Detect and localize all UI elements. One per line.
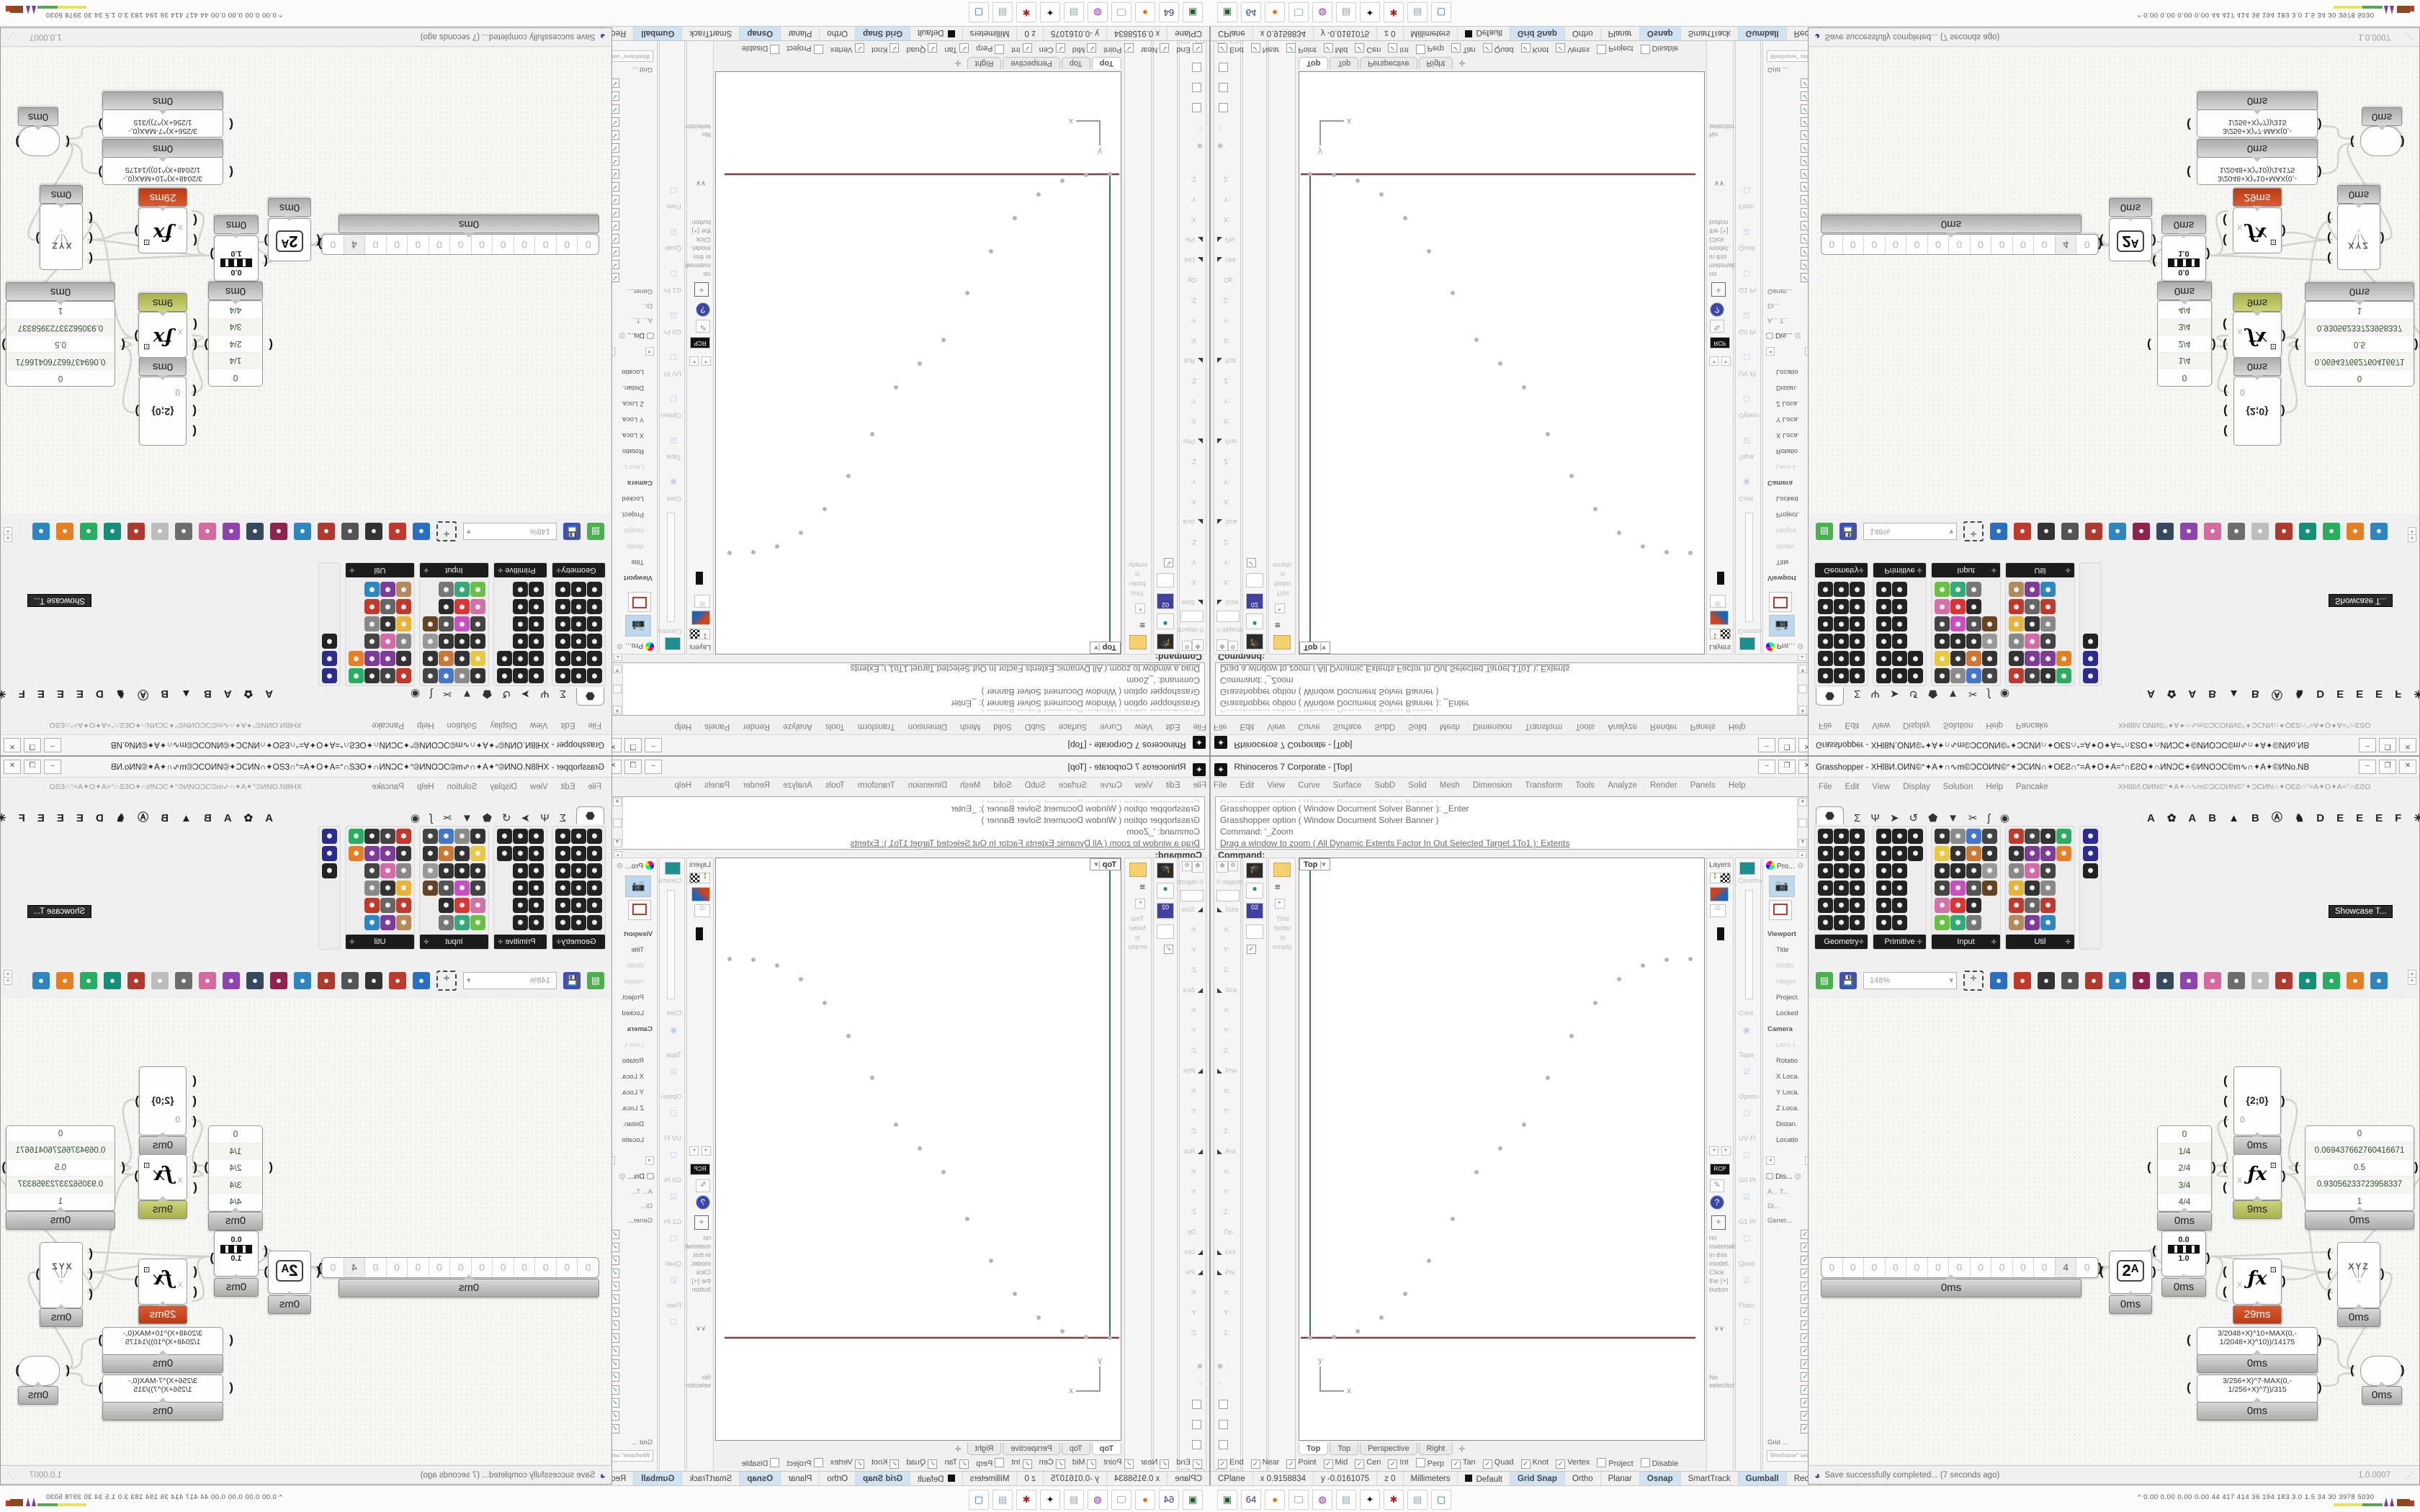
component-icon[interactable]: ⬢ [2009, 616, 2024, 631]
component-icon[interactable]: ⬢ [1950, 915, 1966, 930]
osnap-point[interactable]: ✓Point [1286, 1458, 1316, 1469]
component-icon[interactable]: ⬢ [322, 668, 337, 683]
status-y[interactable]: y -0.0161075 [1043, 24, 1106, 40]
minimize-icon[interactable]: ‒ [1758, 738, 1775, 752]
gh-toolbar-icon-5[interactable]: ● [2014, 972, 2031, 989]
node-port[interactable]: ( [193, 1264, 197, 1279]
component-icon[interactable]: ⬢ [454, 915, 470, 930]
component-icon[interactable]: ⬢ [1950, 651, 1966, 666]
component-icon[interactable]: ⬢ [571, 599, 586, 614]
component-icon[interactable]: ⬢ [2009, 863, 2024, 878]
property-distan[interactable]: Distan. [1776, 1120, 1798, 1128]
component-icon[interactable]: ⬢ [1834, 651, 1849, 666]
component-icon[interactable]: ⬢ [454, 846, 470, 861]
node-port[interactable]: ) [2281, 404, 2285, 418]
osnap-int[interactable]: ✓Int [1011, 44, 1031, 55]
osnap-mid[interactable]: ✓Mid [1072, 1458, 1097, 1469]
gh-toolbar-icon-11[interactable]: ● [2156, 523, 2174, 540]
component-icon[interactable]: ⬢ [1876, 915, 1891, 930]
rhino-menu-dimension[interactable]: Dimension [1473, 781, 1512, 790]
node-port[interactable]: ) [98, 117, 102, 132]
component-icon[interactable]: ⬢ [555, 846, 570, 861]
rhino-menu-panels[interactable]: Panels [1690, 722, 1716, 731]
component-icon[interactable]: ⬢ [513, 846, 528, 861]
property-rotatio[interactable]: Rotatio [622, 447, 644, 455]
component-icon[interactable]: ⬢ [439, 582, 454, 597]
gh-plugin-tab-12[interactable]: F [19, 812, 25, 824]
viewport-label[interactable]: Top |▾ [1299, 642, 1330, 654]
checker-icon[interactable] [689, 873, 700, 883]
help-icon[interactable]: ? [696, 302, 710, 317]
osnap-mid[interactable]: ✓Mid [1072, 44, 1097, 55]
gh-toolbar-icon-0[interactable]: ▤ [1816, 972, 1833, 989]
maximize-icon[interactable]: ❐ [2379, 738, 2396, 752]
settings-red-icon[interactable]: ✱ [1016, 2, 1036, 22]
constraint-option[interactable]: ☐ [670, 1151, 677, 1160]
help-icon[interactable]: ? [1710, 302, 1724, 317]
node-port[interactable]: ) [2282, 1274, 2286, 1288]
quarters-panel[interactable]: 01/42/43/44/4 [2157, 1125, 2212, 1212]
component-icon[interactable]: ⬢ [364, 846, 380, 861]
component-icon[interactable]: ⬢ [470, 582, 485, 597]
status-default[interactable]: Default [910, 24, 962, 40]
component-icon[interactable]: ⬢ [2083, 668, 2098, 683]
component-icon[interactable]: ⬢ [529, 651, 544, 666]
command-history[interactable]: Grasshopper option ( Window Document Sol… [611, 796, 1205, 850]
osnap-mid[interactable]: ✓Mid [1324, 1458, 1348, 1469]
gizmo-icon[interactable]: ✥ [1192, 639, 1204, 651]
tool-02-icon[interactable]: 02 [1157, 593, 1174, 609]
status-x[interactable]: x 0.9158834 [1106, 24, 1167, 40]
zoom-level-combo[interactable]: 148% [1863, 972, 1957, 989]
component-icon[interactable]: ⬢ [396, 863, 411, 878]
boxedit-input[interactable] [1180, 890, 1204, 901]
slider-digit[interactable]: 0 [322, 1258, 344, 1277]
gh-plugin-tab-11[interactable]: E [2375, 688, 2383, 700]
boxedit-input[interactable] [1216, 611, 1240, 622]
gh-toolbar-icon-14[interactable]: ● [175, 523, 192, 540]
rhino-menu-subd[interactable]: SubD [1374, 722, 1395, 731]
maximize-icon[interactable]: ❐ [1778, 738, 1796, 752]
node-port[interactable]: ) [2152, 1264, 2156, 1279]
component-icon[interactable]: ⬢ [423, 829, 438, 844]
slider-digit[interactable]: 0 [471, 235, 493, 254]
osnap-point[interactable]: ✓Point [1286, 44, 1316, 55]
gh-menu-edit[interactable]: Edit [1845, 783, 1860, 791]
menu-icon[interactable]: ≡ [1139, 620, 1145, 631]
component-icon[interactable]: ⬢ [396, 915, 411, 930]
gh-toolbar-icon-19[interactable]: ● [2347, 523, 2364, 540]
node-port[interactable]: ( [2152, 254, 2156, 269]
component-icon[interactable]: ⬢ [1834, 668, 1849, 683]
gear-icon[interactable]: ⚙ [617, 642, 623, 650]
property-project[interactable]: Project. [621, 994, 644, 1002]
student-cap-icon[interactable]: 🎓 [1157, 863, 1174, 878]
gh-plugin-tabs[interactable]: A✿AB▲BⒶ♞DEEEF✳✺❚GG [2147, 798, 2420, 824]
component-icon[interactable]: ⬢ [529, 616, 544, 631]
gh-menu-view[interactable]: View [1872, 783, 1890, 791]
notepad2-icon[interactable]: ▤ [1407, 1490, 1428, 1510]
component-icon[interactable]: ⬢ [349, 829, 364, 844]
gh-tab-icon-1[interactable]: Σ [1854, 688, 1860, 700]
values-panel[interactable]: 00.0694376627604166710.50.93056233723958… [2305, 301, 2414, 387]
component-icon[interactable]: ⬢ [1850, 599, 1865, 614]
slider-digit[interactable]: 0 [534, 235, 556, 254]
gh-group-input[interactable]: ⬢⬢⬢⬢⬢⬢⬢⬢⬢⬢⬢⬢⬢⬢⬢⬢⬢⬢⬢⬢⬢⬢Input [1931, 562, 2001, 686]
gh-menu-help[interactable]: Help [417, 721, 434, 729]
gizmo-icon[interactable]: ✥ [1192, 861, 1204, 873]
property-lensl[interactable]: Lens L. [622, 463, 644, 471]
component-icon[interactable]: ⬢ [454, 634, 470, 649]
component-icon[interactable]: ⬢ [1818, 582, 1833, 597]
gh-plugin-tab-10[interactable]: E [57, 688, 64, 700]
gh-category-tabs[interactable]: ⬣ΣΨ➤↺⬟▼✂ʃ◉ [1816, 798, 2009, 824]
gh-plugin-tab-7[interactable]: ♞ [2295, 811, 2304, 824]
gh-group-util[interactable]: ⬢⬢⬢⬢⬢⬢⬢⬢⬢⬢⬢⬢⬢⬢⬢⬢⬢⬢⬢⬢Util [345, 562, 415, 686]
gh-group-label-input[interactable]: Input [1932, 563, 2000, 577]
constraint-option[interactable]: ☑ [1743, 1192, 1750, 1202]
component-icon[interactable]: ⬢ [439, 863, 454, 878]
rhino-menu-panels[interactable]: Panels [1690, 781, 1716, 790]
camera-button[interactable]: 📷 [1769, 615, 1795, 636]
osnap-int[interactable]: ✓Int [1011, 1458, 1031, 1469]
close-icon[interactable]: ✕ [2399, 738, 2416, 752]
power-node[interactable]: 2ᴬ [268, 1251, 311, 1294]
gh-category-tabs[interactable]: ⬣ΣΨ➤↺⬟▼✂ʃ◉ [411, 798, 604, 824]
gh-toolbar-icon-16[interactable]: ● [127, 523, 145, 540]
slider-digit[interactable]: 0 [429, 235, 450, 254]
property-lensl[interactable]: Lens L. [622, 1041, 644, 1049]
construct-point-node[interactable]: XYZ╲│╱○ [2337, 1242, 2380, 1308]
layers-materials-column[interactable]: Layers 🚶 ▯▯ ◂ ▸ RCP ✎ ? + no materials i… [686, 858, 714, 1480]
gh-canvas[interactable]: 00000000000400ms)2ᴬ0ms()0.01.00ms(){2;0}… [1, 999, 610, 1464]
zoom-extents-icon[interactable]: ✛ [436, 971, 457, 991]
minimize-icon[interactable]: ‒ [2359, 738, 2376, 752]
gh-toolbar-icon-1[interactable]: 💾 [1839, 972, 1857, 989]
property-viewport[interactable]: Viewport [624, 574, 653, 582]
component-icon[interactable]: ⬢ [2040, 915, 2056, 930]
expression-node-b[interactable]: ƒx⊡X [2233, 207, 2282, 253]
osnap-knot[interactable]: ✓Knot [871, 44, 900, 55]
gh-titlebar[interactable]: Grasshopper - XHƖ8И.OИN©°✦A✦∩∿m©ƆCOИN©°✦… [1, 757, 611, 778]
node-port[interactable]: ( [2295, 1160, 2299, 1174]
node-port[interactable]: ( [192, 404, 197, 418]
gh-tab-icon-0[interactable]: ⬣ [1816, 806, 1844, 824]
osnap-quad[interactable]: ✓Quad [906, 1458, 937, 1469]
gh-toolbar-icon-19[interactable]: ● [56, 972, 73, 989]
gh-menu-view[interactable]: View [530, 721, 548, 729]
gh-tab-icon-8[interactable]: ʃ [1988, 688, 1990, 700]
viewport-label[interactable]: Top |▾ [1090, 858, 1121, 870]
property-zloca[interactable]: Z Loca. [1776, 400, 1799, 408]
osnap-project[interactable]: Project [1597, 44, 1633, 54]
gh-plugin-tab-6[interactable]: Ⓐ [2272, 809, 2282, 824]
gh-plugin-tab-2[interactable]: A [224, 688, 232, 700]
gh-tab-icon-8[interactable]: ʃ [430, 812, 432, 824]
component-icon[interactable]: ⬢ [1950, 599, 1966, 614]
gh-tab-icon-0[interactable]: ⬣ [576, 806, 604, 824]
slider-digit[interactable]: 0 [1864, 235, 1886, 254]
gh-plugin-tab-0[interactable]: A [2147, 688, 2155, 700]
settings-red-icon[interactable]: ✱ [1016, 1490, 1036, 1510]
target-button[interactable] [628, 900, 651, 920]
swatch[interactable] [1157, 573, 1174, 588]
node-port[interactable]: ( [2350, 1363, 2354, 1377]
node-port[interactable]: ) [2318, 1380, 2322, 1395]
rhino-titlebar[interactable]: ✦ Rhinoceros 7 Corporate - [Top] ‒ ❐ ✕ [601, 734, 1209, 755]
node-port[interactable]: ( [2223, 318, 2227, 332]
component-icon[interactable]: ⬢ [454, 668, 470, 683]
status-osnap[interactable]: Osnap [739, 24, 780, 40]
status-grid[interactable]: Grid Snap [855, 24, 910, 40]
component-icon[interactable]: ⬢ [2025, 881, 2040, 896]
node-port[interactable]: ) [2206, 247, 2210, 261]
node-port[interactable]: ) [210, 247, 214, 261]
gh-canvas[interactable]: 00000000000400ms)2ᴬ0ms()0.01.00ms(){2;0}… [1, 48, 610, 513]
component-icon[interactable]: ⬢ [396, 846, 411, 861]
component-icon[interactable]: ⬢ [587, 651, 602, 666]
digit-slider-node[interactable]: 0000000000040 [321, 234, 599, 255]
rhino-menu-file[interactable]: File [1214, 781, 1227, 790]
node-port[interactable]: ( [2223, 424, 2228, 438]
component-icon[interactable]: ⬢ [1935, 829, 1950, 844]
gh-group-label-input[interactable]: Input [420, 563, 488, 577]
component-icon[interactable]: ⬢ [587, 898, 602, 913]
gh-toolbar-icon-6[interactable]: ● [2038, 972, 2055, 989]
component-icon[interactable]: ⬢ [322, 829, 337, 844]
osnap-cen[interactable]: ✓Cen [1039, 44, 1065, 55]
viewport-tab-top-0[interactable]: Top [1299, 1443, 1328, 1455]
rhino-menu-transform[interactable]: Transform [1525, 722, 1562, 731]
component-icon[interactable]: ⬢ [2025, 616, 2040, 631]
component-icon[interactable]: ⬢ [349, 651, 364, 666]
component-icon[interactable]: ⬢ [1834, 915, 1849, 930]
device-icon[interactable]: ▣ [1183, 2, 1203, 22]
gh-toolbar-icon-9[interactable]: ● [294, 523, 311, 540]
gh-toolbar-icon-9[interactable]: ● [2109, 972, 2126, 989]
constraint-option[interactable]: ☐ [670, 1234, 677, 1243]
component-icon[interactable]: ⬢ [1834, 881, 1849, 896]
property-locatio[interactable]: Locatio [1776, 1136, 1798, 1144]
node-port[interactable]: ( [192, 384, 197, 398]
component-icon[interactable]: ⬢ [1850, 634, 1865, 649]
gh-tab-icon-3[interactable]: ➤ [521, 811, 530, 824]
gh-toolbar-icon-10[interactable]: ● [2133, 523, 2150, 540]
rhino-menu-view[interactable]: View [1267, 781, 1285, 790]
checker-icon[interactable] [1720, 629, 1731, 639]
component-icon[interactable]: ⬢ [2040, 863, 2056, 878]
viewport-label[interactable]: Top |▾ [1299, 858, 1330, 870]
gear-icon[interactable]: ⚙ [1182, 641, 1192, 651]
component-icon[interactable]: ⬢ [2009, 651, 2024, 666]
vertical-slider[interactable] [667, 890, 675, 999]
component-icon[interactable]: ⬢ [587, 616, 602, 631]
slider-digit[interactable]: 0 [1886, 1258, 1907, 1277]
maximize-icon[interactable]: ❐ [24, 760, 41, 774]
display-mode-icon[interactable] [691, 887, 710, 901]
constraint-option[interactable]: ◉ [1743, 477, 1750, 487]
osnap-bar[interactable]: ✓End✓Near✓Point✓Mid✓Cen✓IntPerp✓Tan✓Quad… [742, 41, 1202, 57]
component-icon[interactable]: ⬢ [571, 898, 586, 913]
constraint-option[interactable]: ☐ [1743, 1109, 1750, 1118]
viewport-tab-right-3[interactable]: Right [1419, 1443, 1453, 1455]
component-icon[interactable]: ⬢ [380, 846, 395, 861]
new-viewport-tab-icon[interactable]: ✛ [951, 57, 966, 69]
component-icon[interactable]: ⬢ [470, 634, 485, 649]
component-icon[interactable]: ⬢ [2056, 846, 2071, 861]
component-icon[interactable]: ⬢ [1892, 599, 1907, 614]
component-icon[interactable]: ⬢ [497, 846, 512, 861]
osnap-knot[interactable]: ✓Knot [871, 1458, 900, 1469]
gh-toolbar-icon-15[interactable]: ● [2251, 523, 2269, 540]
gh-tab-icon-2[interactable]: Ψ [540, 812, 550, 824]
power-node[interactable]: 2ᴬ [2109, 1251, 2152, 1294]
slider-digit[interactable]: 4 [344, 1258, 365, 1277]
osnap-perp[interactable]: Perp [1416, 44, 1444, 54]
gh-toolbar-icon-5[interactable]: ● [389, 523, 406, 540]
component-icon[interactable]: ⬢ [1950, 616, 1966, 631]
taskbar[interactable]: ▣64●🖵◍▤✦✱▤▢ ^ 0.00 0.00 0.00 0.00 44 417… [1210, 0, 2420, 27]
rhino-menu-analyze[interactable]: Analyze [1608, 781, 1637, 790]
gh-tab-icon-5[interactable]: ⬟ [1928, 811, 1937, 824]
component-icon[interactable]: ⬢ [1966, 599, 1981, 614]
osnap-disable[interactable]: Disable [1641, 1458, 1679, 1468]
node-port[interactable]: ( [192, 1114, 197, 1128]
property-zloca[interactable]: Z Loca. [621, 400, 644, 408]
component-icon[interactable]: ⬢ [1935, 616, 1950, 631]
firefox-icon[interactable]: ● [1265, 1490, 1285, 1510]
node-port[interactable]: ( [89, 1287, 93, 1301]
gh-tab-icon-5[interactable]: ⬟ [483, 811, 492, 824]
notepad-icon[interactable]: ▤ [1336, 1490, 1356, 1510]
osnap-int[interactable]: ✓Int [1388, 1458, 1408, 1469]
component-icon[interactable]: ⬢ [1892, 582, 1907, 597]
component-icon[interactable]: ⬢ [2025, 634, 2040, 649]
pen-icon[interactable]: ✎ [696, 1179, 710, 1192]
expression-node-a[interactable]: ƒx⊡X [2233, 1154, 2282, 1200]
rhino-menu-mesh[interactable]: Mesh [960, 722, 980, 731]
gh-group-primitive[interactable]: ⬢⬢⬢⬢⬢⬢⬢⬢⬢⬢⬢⬢⬢⬢Primitive [1873, 826, 1927, 950]
node-port[interactable]: ( [89, 231, 93, 246]
expression-node-b[interactable]: ƒx⊡X [138, 207, 187, 253]
node-port[interactable]: ( [89, 251, 93, 266]
node-port[interactable]: ) [210, 1251, 214, 1265]
gh-menu-display[interactable]: Display [1903, 721, 1930, 729]
gh-plugin-tab-6[interactable]: Ⓐ [138, 688, 148, 703]
component-icon[interactable]: ⬢ [439, 846, 454, 861]
component-icon[interactable]: ⬢ [470, 863, 485, 878]
relay-node[interactable]: {2;0}0 [2233, 377, 2281, 446]
node-port[interactable]: ( [193, 1160, 197, 1174]
property-camera[interactable]: Camera [627, 1025, 653, 1033]
constraint-option[interactable]: ☑ [1743, 1067, 1750, 1076]
gh-group-label-primitive[interactable]: Primitive [494, 935, 547, 949]
rhino-menu-subd[interactable]: SubD [1025, 781, 1046, 790]
osnap-cen[interactable]: ✓Cen [1355, 1458, 1381, 1469]
node-port[interactable]: ) [135, 1094, 139, 1108]
minimize-icon[interactable]: ‒ [2359, 760, 2376, 774]
property-rotatio[interactable]: Rotatio [1776, 1057, 1798, 1065]
gear-icon[interactable]: ⚙ [1228, 861, 1238, 871]
rhino-icon[interactable]: ✦ [1360, 2, 1380, 22]
gh-tab-icon-6[interactable]: ▼ [1948, 812, 1958, 824]
settings-red-icon[interactable]: ✱ [1384, 2, 1404, 22]
node-port[interactable]: ) [204, 1160, 208, 1174]
constraint-option[interactable]: ☑ [1743, 227, 1750, 236]
component-icon[interactable]: ⬢ [1908, 829, 1923, 844]
taskbar[interactable]: ▣64●🖵◍▤✦✱▤▢ ^ 0.00 0.00 0.00 0.00 44 417… [0, 1485, 1210, 1512]
rcp-icon[interactable]: RCP [690, 1164, 710, 1175]
add-material-button[interactable]: + [694, 1215, 709, 1230]
gh-toolbar-icon-12[interactable]: ● [223, 523, 240, 540]
component-icon[interactable]: ⬢ [555, 616, 570, 631]
expand-icon[interactable]: ▸ [1135, 899, 1145, 909]
gh-plugin-tab-2[interactable]: A [2188, 688, 2196, 700]
viewport-top[interactable]: Top |▾ y x [715, 858, 1121, 1441]
gh-menu-file[interactable]: File [1819, 783, 1832, 791]
boxedit-panel[interactable]: ✥ ⚙ 0 objects SizeX:Y:Z:ScaX:Y:Z:PosX:Y:… [1214, 858, 1241, 1480]
node-port[interactable]: ( [2187, 117, 2191, 132]
node-port[interactable]: ) [2282, 1169, 2286, 1183]
component-icon[interactable]: ⬢ [2009, 668, 2024, 683]
component-icon[interactable]: ⬢ [529, 915, 544, 930]
sphere-icon[interactable]: ● [1157, 883, 1174, 899]
gh-toolbar-icon-12[interactable]: ● [2180, 523, 2197, 540]
device-icon[interactable]: ▣ [1183, 1490, 1203, 1510]
rhino-menu-edit[interactable]: Edit [1166, 781, 1180, 790]
osnap-bar[interactable]: ✓End✓Near✓Point✓Mid✓Cen✓IntPerp✓Tan✓Quad… [1218, 1455, 1678, 1471]
component-icon[interactable]: ⬢ [1850, 846, 1865, 861]
component-icon[interactable]: ⬢ [396, 651, 411, 666]
component-icon[interactable]: ⬢ [439, 898, 454, 913]
gh-toolbar-icon-15[interactable]: ● [151, 523, 169, 540]
folder-icon[interactable] [1129, 863, 1147, 877]
component-icon[interactable]: ⬢ [1982, 668, 1997, 683]
component-icon[interactable]: ⬢ [1908, 668, 1923, 683]
component-icon[interactable]: ⬢ [2025, 668, 2040, 683]
zoom-level-combo[interactable]: 148% [463, 972, 557, 989]
component-icon[interactable]: ⬢ [2083, 846, 2098, 861]
gh-tab-icon-7[interactable]: ✂ [442, 811, 452, 824]
tools-column[interactable]: 🎓 ● 02 ✓ [1242, 32, 1267, 654]
gh-toolbar-icon-6[interactable]: ● [2038, 523, 2055, 540]
property-lensl[interactable]: Lens L. [1776, 1041, 1798, 1049]
property-xloca[interactable]: X Loca. [1776, 431, 1799, 439]
slider-digit[interactable]: 0 [1843, 235, 1865, 254]
component-icon[interactable]: ⬢ [1876, 599, 1891, 614]
status-x[interactable]: x 0.9158834 [1253, 24, 1314, 40]
gh-menu-file[interactable]: File [588, 783, 601, 791]
command-scrollbar[interactable]: ▲ ▼ [1797, 797, 1807, 847]
node-port[interactable]: ( [316, 1264, 321, 1279]
component-icon[interactable]: ⬢ [1966, 668, 1981, 683]
component-icon[interactable]: ⬢ [1950, 634, 1966, 649]
dosbox-icon[interactable]: 64 [1159, 1490, 1179, 1510]
gh-plugin-tab-9[interactable]: E [2336, 812, 2344, 824]
swatch[interactable] [1246, 924, 1263, 939]
osnap-near[interactable]: ✓Near [1141, 1458, 1170, 1469]
zoom-level-combo[interactable]: 148% [463, 523, 557, 540]
component-icon[interactable]: ⬢ [1935, 915, 1950, 930]
person-icon[interactable]: 🚶 [1710, 629, 1721, 639]
osnap-near[interactable]: ✓Near [1141, 44, 1170, 55]
dosbox-icon[interactable]: 64 [1159, 2, 1179, 22]
component-icon[interactable]: ⬢ [587, 582, 602, 597]
osnap-disable[interactable]: Disable [742, 1458, 780, 1468]
component-icon[interactable]: ⬢ [1935, 898, 1950, 913]
component-icon[interactable]: ⬢ [1834, 846, 1849, 861]
boxedit-input[interactable] [1180, 611, 1204, 622]
